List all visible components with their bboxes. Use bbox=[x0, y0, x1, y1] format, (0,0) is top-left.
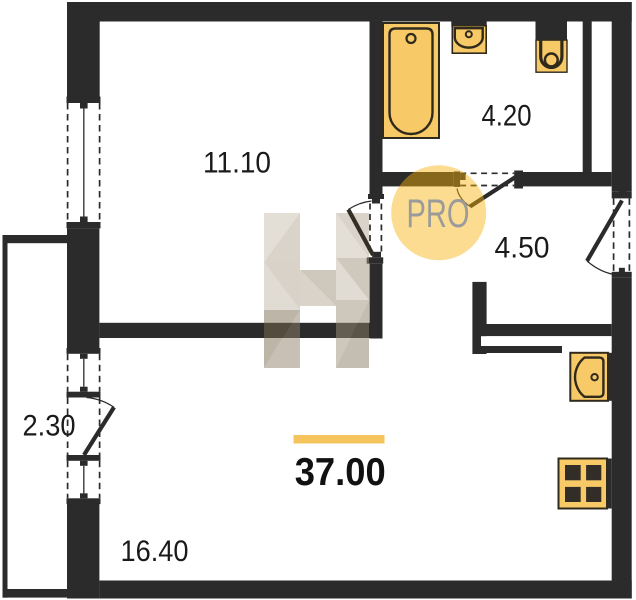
svg-text:11.10: 11.10 bbox=[203, 147, 271, 180]
svg-text:4.20: 4.20 bbox=[482, 100, 532, 133]
svg-text:16.40: 16.40 bbox=[121, 535, 189, 568]
svg-text:2.30: 2.30 bbox=[23, 410, 76, 443]
svg-text:4.50: 4.50 bbox=[495, 232, 550, 265]
svg-text:37.00: 37.00 bbox=[295, 451, 386, 494]
svg-text:PRO: PRO bbox=[407, 192, 470, 236]
